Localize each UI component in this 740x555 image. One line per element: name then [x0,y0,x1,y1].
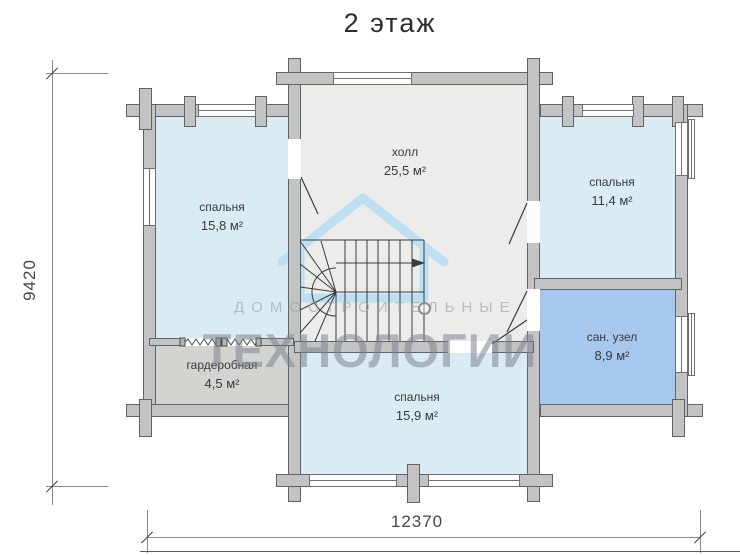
room-label-bedroom-left: спальня 15,8 м² [157,198,287,236]
dimension-line-horizontal [147,537,700,538]
watermark-text-big: ТЕХНОЛОГИИ [188,323,552,378]
room-label-bedroom-right: спальня 11,4 м² [547,173,677,211]
dimension-extension [46,486,108,487]
room-label-bedroom-bottom: спальня 15,9 м² [352,388,482,426]
dimension-extension [46,73,108,74]
stairs-direction-arrow [412,259,425,268]
floor-plan: 2 этаж [0,0,740,555]
dimension-value-horizontal: 12370 [367,512,467,532]
room-label-hall: холл 25,5 м² [340,143,470,181]
dimension-extension [147,510,148,553]
dimension-value-vertical: 9420 [20,250,40,310]
room-label-bathroom: сан. узел 8,9 м² [547,328,677,366]
watermark-text-small: ДОМОСТРОИТЕЛЬНЫЕ [234,299,514,316]
bottom-edge-line [140,551,740,552]
watermark-ring-icon [418,302,431,315]
stairs-drawing [0,0,740,555]
dimension-extension [700,510,701,553]
dimension-line-vertical [52,60,53,505]
